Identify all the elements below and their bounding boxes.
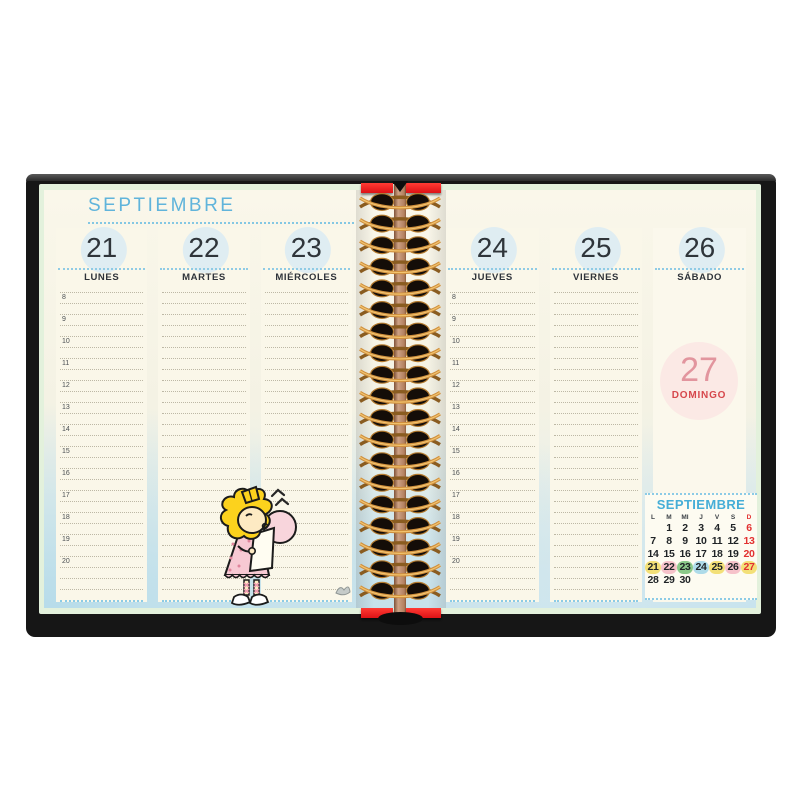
rule-line — [450, 380, 535, 381]
date-cell — [709, 574, 725, 587]
rule-line — [554, 512, 639, 513]
rule-line — [265, 380, 348, 381]
day-number: 21 — [56, 228, 147, 268]
rule-line — [450, 369, 535, 370]
weekday-header: V — [709, 513, 725, 522]
rule-line — [265, 479, 348, 480]
rule-line — [60, 314, 143, 315]
rule-line — [554, 402, 639, 403]
bottom-blue-rule — [554, 600, 639, 602]
rule-line — [60, 358, 143, 359]
rule-line — [162, 435, 245, 436]
date-cell: 23 — [677, 561, 693, 574]
rule-line — [162, 380, 245, 381]
date-cell: 7 — [645, 535, 661, 548]
date-cell: 17 — [693, 548, 709, 561]
rule-line — [450, 336, 535, 337]
rule-line — [265, 468, 348, 469]
rule-line — [450, 314, 535, 315]
mini-calendar: SEPTIEMBRE LMMIJVSD 12345678910111213141… — [645, 493, 757, 600]
date-cell: 13 — [741, 535, 757, 548]
notebook-cover-top-edge — [26, 174, 776, 181]
hour-label: 10 — [62, 338, 70, 345]
day-name: MIÉRCOLES — [261, 272, 352, 283]
rule-line — [60, 479, 143, 480]
sunday-label: DOMINGO — [660, 390, 738, 401]
planner-photo: SEPTIEMBRE 21LUNES8910111213141516171819… — [0, 0, 800, 800]
day-name: LUNES — [56, 272, 147, 283]
hour-label: 15 — [452, 448, 460, 455]
weekday-header: D — [741, 513, 757, 522]
hour-label: 16 — [452, 470, 460, 477]
rule-line — [554, 435, 639, 436]
rule-line — [265, 303, 348, 304]
date-cell: 8 — [661, 535, 677, 548]
rule-line — [554, 545, 639, 546]
date-cell: 10 — [693, 535, 709, 548]
rule-line — [60, 446, 143, 447]
rule-line — [162, 325, 245, 326]
rule-line — [554, 589, 639, 590]
hour-label: 20 — [452, 558, 460, 565]
rule-line — [554, 303, 639, 304]
rule-line — [60, 589, 143, 590]
rule-line — [450, 457, 535, 458]
rule-line — [450, 556, 535, 557]
rule-line — [60, 545, 143, 546]
rule-line — [60, 325, 143, 326]
rule-line — [450, 402, 535, 403]
left-day-columns: 21LUNES89101112131415161718192022MARTES2… — [56, 228, 352, 602]
rule-line — [450, 468, 535, 469]
rule-line — [450, 567, 535, 568]
day-number: 22 — [158, 228, 249, 268]
rule-line — [265, 413, 348, 414]
rule-line — [450, 501, 535, 502]
right-page: 24JUEVES89101112131415161718192025VIERNE… — [444, 190, 756, 608]
date-cell: 9 — [677, 535, 693, 548]
rule-line — [450, 523, 535, 524]
rule-line — [265, 402, 348, 403]
weekday-header: MI — [677, 513, 693, 522]
day-number: 25 — [550, 228, 643, 268]
rule-line — [60, 369, 143, 370]
hour-label: 18 — [62, 514, 70, 521]
hour-label: 17 — [62, 492, 70, 499]
weekday-header: S — [725, 513, 741, 522]
rule-line — [450, 413, 535, 414]
rule-line — [450, 292, 535, 293]
day-column-21: 21LUNES891011121314151617181920 — [56, 228, 147, 602]
date-cell: 21 — [645, 561, 661, 574]
date-cell: 25 — [709, 561, 725, 574]
mini-calendar-bottom-rule — [645, 598, 757, 600]
date-cell: 2 — [677, 522, 693, 535]
date-cell: 30 — [677, 574, 693, 587]
rule-line — [162, 424, 245, 425]
day-name: JUEVES — [446, 272, 539, 283]
hour-label: 16 — [62, 470, 70, 477]
mini-calendar-dates: 1234567891011121314151617181920212223242… — [645, 522, 757, 587]
rule-line — [554, 578, 639, 579]
rule-line — [554, 490, 639, 491]
rule-line — [265, 446, 348, 447]
rule-line — [450, 325, 535, 326]
sally-character-illustration — [206, 484, 306, 620]
rule-line — [60, 424, 143, 425]
date-cell: 24 — [693, 561, 709, 574]
rule-line — [60, 567, 143, 568]
day-column-24: 24JUEVES891011121314151617181920 — [446, 228, 539, 602]
rule-line — [554, 424, 639, 425]
rule-line — [162, 479, 245, 480]
rule-line — [60, 380, 143, 381]
sunday-circle: 27 DOMINGO — [660, 342, 738, 420]
day-name: VIERNES — [550, 272, 643, 283]
rule-line — [450, 479, 535, 480]
left-page: SEPTIEMBRE 21LUNES8910111213141516171819… — [44, 190, 358, 608]
rule-line — [450, 534, 535, 535]
rule-line — [60, 347, 143, 348]
rule-line — [265, 292, 348, 293]
rule-line — [554, 369, 639, 370]
day-number: 24 — [446, 228, 539, 268]
rule-line — [265, 457, 348, 458]
date-cell: 1 — [661, 522, 677, 535]
motion-marks-icon — [272, 490, 288, 505]
shoes — [232, 595, 268, 605]
rule-line — [450, 435, 535, 436]
hour-label: 11 — [452, 360, 459, 367]
weekday-header: L — [645, 513, 661, 522]
rule-line — [554, 413, 639, 414]
hour-label: 13 — [62, 404, 70, 411]
hour-label: 14 — [452, 426, 460, 433]
rule-line — [554, 479, 639, 480]
weekday-header: J — [693, 513, 709, 522]
hour-label: 12 — [452, 382, 460, 389]
rule-line — [265, 347, 348, 348]
hour-label: 14 — [62, 426, 70, 433]
rule-line — [60, 303, 143, 304]
day-underline — [58, 268, 145, 270]
rule-line — [450, 589, 535, 590]
rule-line — [60, 578, 143, 579]
rule-line — [162, 347, 245, 348]
rule-line — [60, 457, 143, 458]
rule-line — [162, 369, 245, 370]
rule-line — [450, 512, 535, 513]
rule-line — [450, 391, 535, 392]
rule-line — [265, 314, 348, 315]
date-cell: 5 — [725, 522, 741, 535]
date-cell: 15 — [661, 548, 677, 561]
day-underline — [448, 268, 537, 270]
hour-label: 9 — [452, 316, 456, 323]
rule-line — [60, 468, 143, 469]
day-underline — [160, 268, 247, 270]
rule-line — [265, 435, 348, 436]
hour-label: 10 — [452, 338, 460, 345]
hour-label: 12 — [62, 382, 70, 389]
hour-label: 18 — [452, 514, 460, 521]
hour-label: 9 — [62, 316, 66, 323]
face — [238, 507, 266, 533]
rule-line — [162, 457, 245, 458]
rule-line — [265, 424, 348, 425]
rule-line — [162, 413, 245, 414]
hour-label: 8 — [452, 294, 456, 301]
rule-line — [60, 501, 143, 502]
spine-bottom-shadow — [378, 612, 423, 625]
rule-line — [554, 347, 639, 348]
month-title-underline — [88, 222, 354, 224]
small-doodle-icon — [334, 583, 352, 597]
rule-line — [450, 446, 535, 447]
rule-line — [450, 424, 535, 425]
date-cell: 28 — [645, 574, 661, 587]
day-underline — [263, 268, 350, 270]
date-cell: 11 — [709, 535, 725, 548]
rule-line — [162, 314, 245, 315]
rule-line — [450, 347, 535, 348]
rule-line — [265, 358, 348, 359]
rule-line — [554, 336, 639, 337]
rule-line — [60, 534, 143, 535]
hour-label: 15 — [62, 448, 70, 455]
hour-label: 13 — [452, 404, 460, 411]
rule-line — [60, 402, 143, 403]
rule-line — [60, 556, 143, 557]
date-cell: 12 — [725, 535, 741, 548]
rule-line — [554, 556, 639, 557]
hour-label: 19 — [62, 536, 70, 543]
rule-line — [554, 391, 639, 392]
rule-line — [554, 446, 639, 447]
rule-line — [162, 292, 245, 293]
bottom-blue-rule — [60, 600, 143, 602]
rule-line — [265, 369, 348, 370]
rule-line — [265, 391, 348, 392]
rule-line — [450, 545, 535, 546]
rule-line — [450, 358, 535, 359]
spiral-binding-icon — [352, 190, 448, 608]
rule-line — [554, 468, 639, 469]
hour-grid: 891011121314151617181920 — [450, 292, 535, 604]
day-column-25: 25VIERNES — [550, 228, 643, 602]
rule-line — [162, 446, 245, 447]
month-title: SEPTIEMBRE — [88, 195, 235, 217]
rule-line — [60, 413, 143, 414]
hour-label: 17 — [452, 492, 460, 499]
rule-line — [162, 391, 245, 392]
rule-line — [60, 292, 143, 293]
rule-line — [60, 391, 143, 392]
date-cell: 4 — [709, 522, 725, 535]
rule-line — [60, 523, 143, 524]
hour-label: 19 — [452, 536, 460, 543]
rule-line — [554, 358, 639, 359]
rule-line — [162, 303, 245, 304]
rule-line — [554, 523, 639, 524]
rule-line — [60, 490, 143, 491]
day-underline — [655, 268, 744, 270]
dress-hem — [225, 575, 269, 578]
rule-line — [554, 314, 639, 315]
mini-calendar-title: SEPTIEMBRE — [645, 495, 757, 513]
date-cell: 22 — [661, 561, 677, 574]
hour-label: 11 — [62, 360, 69, 367]
date-cell: 29 — [661, 574, 677, 587]
hour-label: 8 — [62, 294, 66, 301]
date-cell: 27 — [741, 561, 757, 574]
day-underline — [552, 268, 641, 270]
rule-line — [162, 402, 245, 403]
weekday-header: M — [661, 513, 677, 522]
rule-line — [554, 534, 639, 535]
date-cell: 3 — [693, 522, 709, 535]
date-cell — [725, 574, 741, 587]
rule-line — [554, 325, 639, 326]
rule-line — [60, 336, 143, 337]
day-name: MARTES — [158, 272, 249, 283]
day-name: SÁBADO — [653, 272, 746, 283]
date-cell: 26 — [725, 561, 741, 574]
hand — [249, 548, 255, 554]
rule-line — [265, 325, 348, 326]
date-cell: 18 — [709, 548, 725, 561]
date-cell — [645, 522, 661, 535]
date-cell: 6 — [741, 522, 757, 535]
sunday-number: 27 — [660, 348, 738, 392]
date-cell — [693, 574, 709, 587]
hour-grid: 891011121314151617181920 — [60, 292, 143, 604]
rule-line — [450, 578, 535, 579]
rule-line — [162, 468, 245, 469]
date-cell: 16 — [677, 548, 693, 561]
rule-line — [265, 336, 348, 337]
rule-line — [450, 303, 535, 304]
rule-line — [554, 501, 639, 502]
rule-line — [554, 380, 639, 381]
rule-line — [60, 512, 143, 513]
rule-line — [450, 490, 535, 491]
day-number: 26 — [653, 228, 746, 268]
rule-line — [554, 292, 639, 293]
rule-line — [554, 567, 639, 568]
rule-line — [554, 457, 639, 458]
mini-calendar-weekday-row: LMMIJVSD — [645, 513, 757, 522]
rule-line — [162, 336, 245, 337]
date-cell — [741, 574, 757, 587]
date-cell: 19 — [725, 548, 741, 561]
date-cell: 20 — [741, 548, 757, 561]
rule-line — [162, 358, 245, 359]
legs — [244, 580, 259, 595]
hour-grid — [554, 292, 639, 604]
hour-label: 20 — [62, 558, 70, 565]
bottom-blue-rule — [450, 600, 535, 602]
day-number: 23 — [261, 228, 352, 268]
date-cell: 14 — [645, 548, 661, 561]
rule-line — [60, 435, 143, 436]
